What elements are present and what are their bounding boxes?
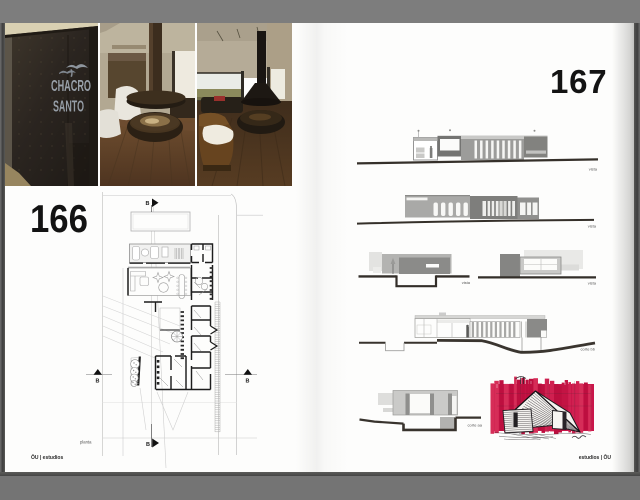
svg-text:vista: vista xyxy=(588,224,597,229)
svg-text:estudios | ŌU: estudios | ŌU xyxy=(579,454,612,461)
svg-text:vista: vista xyxy=(588,281,597,286)
svg-text:vista: vista xyxy=(589,167,598,172)
svg-text:ŌU | estudios: ŌU | estudios xyxy=(31,454,63,461)
svg-text:corte bb: corte bb xyxy=(581,347,596,352)
svg-text:vista: vista xyxy=(462,280,471,285)
svg-text:corte aa: corte aa xyxy=(468,423,483,428)
